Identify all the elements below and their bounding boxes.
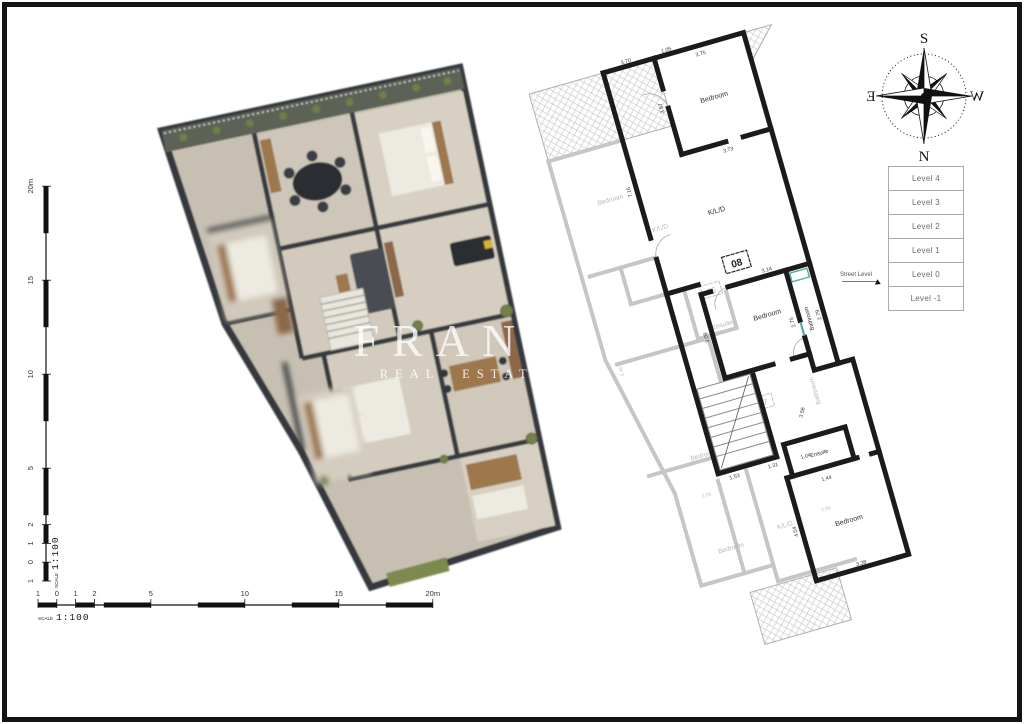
room-label: Bedroom: [597, 193, 624, 207]
dim-label: 7.16: [626, 186, 635, 198]
room-label: K/L/D: [707, 206, 726, 218]
scale-bar-vertical: 1 0 1 2 5 10 15 20m SCALE1:100: [20, 178, 64, 598]
room-label: K/L/D: [652, 223, 670, 234]
dim-label: 3.75: [695, 50, 707, 59]
scale-word: SCALE: [38, 616, 53, 621]
dim-label: 1.04: [800, 453, 812, 462]
dim-label: 1.44: [821, 475, 833, 484]
street-level-line: [842, 281, 878, 282]
scale-tick: 0: [26, 560, 35, 564]
room-label: Bathroom: [804, 306, 817, 331]
compass-east-label: E: [866, 89, 875, 105]
level-row-1[interactable]: Level 1: [888, 239, 964, 263]
dim-label: 1.53: [729, 473, 741, 482]
dim-label: 1.31: [767, 462, 779, 471]
dim-label: 2.40: [618, 366, 626, 377]
scale-bar-horizontal: 1 0 1 2 5 10 15 20m SCALE1:100: [30, 584, 450, 624]
compass-west-label: W: [969, 89, 984, 105]
room-label: Ensuite: [810, 449, 830, 460]
svg-text:SCALE1:100: SCALE1:100: [50, 536, 61, 588]
level-row-2[interactable]: Level 2: [888, 215, 964, 239]
compass-north-label: N: [919, 149, 930, 164]
dim-label: 3.56: [799, 407, 807, 419]
level-selector: Level 4 Level 3 Level 2 Level 1 Level 0 …: [888, 166, 964, 311]
compass-rose-icon: S W N E: [864, 30, 984, 164]
scale-tick: 2: [26, 523, 35, 527]
level-row-4[interactable]: Level 4: [888, 166, 964, 191]
terrace-bottom: [750, 568, 851, 645]
dim-label: 2.75: [789, 316, 798, 328]
scale-tick: 15: [26, 276, 35, 284]
room-label: Bathroom: [808, 376, 822, 405]
room-label: Bedroom: [835, 514, 864, 529]
floorplan-sheet: FRANK REAL ESTATE: [0, 0, 1024, 724]
scale-tick: 2: [92, 589, 96, 598]
level-row-3[interactable]: Level 3: [888, 191, 964, 215]
dim-label: 2.05: [701, 491, 712, 500]
scale-tick: 1: [26, 541, 35, 545]
scale-tick: 1: [26, 579, 35, 583]
scale-tick: 5: [149, 589, 153, 598]
level-row-minus1[interactable]: Level -1: [888, 287, 964, 311]
scale-tick: 20m: [26, 179, 35, 194]
scale-tick: 5: [26, 466, 35, 470]
scale-word: SCALE: [54, 573, 59, 588]
room-label: Bedroom: [753, 308, 782, 323]
scale-tick: 20m: [426, 589, 441, 598]
scale-tick: 10: [241, 589, 249, 598]
scale-tick: 1: [74, 589, 78, 598]
street-level-marker: Street Level: [840, 272, 892, 290]
street-level-label: Street Level: [840, 272, 872, 278]
room-label: Bedroom: [700, 90, 729, 105]
scale-ratio: 1:100: [50, 536, 61, 570]
svg-text:SCALE1:100: SCALE1:100: [38, 612, 90, 623]
scale-ratio: 1:100: [56, 612, 90, 623]
scale-tick: 15: [335, 589, 343, 598]
dim-label: 2.06: [821, 505, 832, 514]
level-row-0[interactable]: Level 0: [888, 263, 964, 287]
dim-label: 3.73: [722, 146, 734, 155]
street-level-arrow-icon: [875, 279, 882, 287]
scale-tick: 10: [26, 370, 35, 378]
compass-south-label: S: [920, 31, 928, 47]
